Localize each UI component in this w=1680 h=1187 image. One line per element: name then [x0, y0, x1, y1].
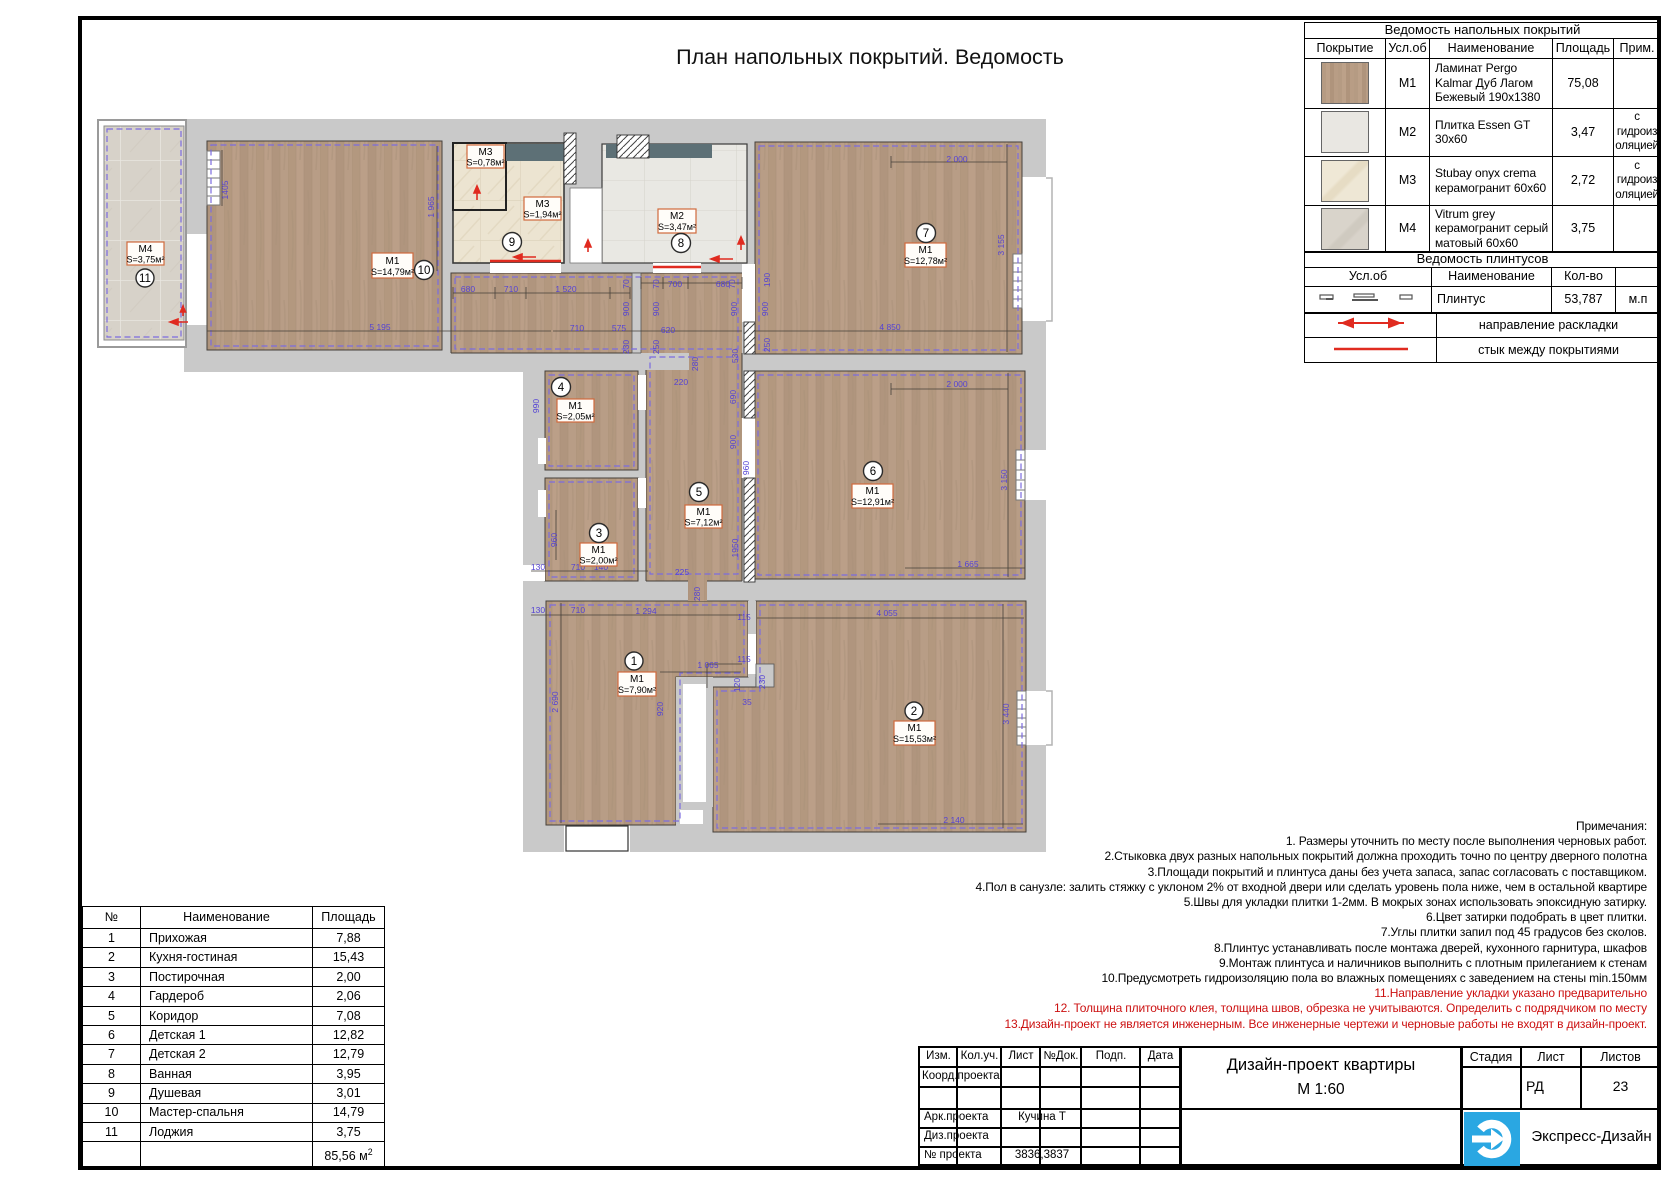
svg-text:530: 530	[730, 349, 740, 363]
svg-text:70: 70	[621, 279, 631, 289]
svg-text:6: 6	[870, 466, 876, 478]
svg-text:М1: М1	[919, 245, 933, 256]
svg-text:7: 7	[923, 228, 929, 240]
svg-text:900: 900	[729, 302, 739, 316]
svg-text:70: 70	[651, 279, 661, 289]
svg-text:S=7,12м²: S=7,12м²	[685, 518, 723, 528]
svg-text:1950: 1950	[730, 538, 740, 557]
svg-text:3 155: 3 155	[996, 234, 1006, 256]
svg-text:35: 35	[742, 697, 752, 707]
svg-text:2 690: 2 690	[550, 691, 560, 713]
svg-text:280: 280	[692, 587, 702, 601]
svg-text:8: 8	[678, 238, 684, 250]
svg-text:115: 115	[737, 654, 751, 664]
svg-text:900: 900	[651, 302, 661, 316]
svg-text:3 440: 3 440	[1001, 703, 1011, 725]
svg-text:1 665: 1 665	[957, 559, 979, 569]
svg-text:900: 900	[621, 302, 631, 316]
svg-text:М1: М1	[697, 507, 711, 518]
svg-text:М1: М1	[908, 723, 922, 734]
svg-text:250: 250	[651, 340, 661, 354]
svg-text:280: 280	[690, 357, 700, 371]
svg-text:S=15,53м²: S=15,53м²	[893, 734, 936, 744]
svg-text:920: 920	[655, 702, 665, 716]
svg-text:S=12,91м²: S=12,91м²	[851, 497, 894, 507]
svg-text:960: 960	[549, 533, 559, 547]
svg-text:М3: М3	[479, 147, 493, 158]
svg-text:575: 575	[612, 323, 626, 333]
svg-text:230: 230	[621, 340, 631, 354]
svg-text:3: 3	[596, 528, 602, 540]
svg-text:225: 225	[675, 567, 689, 577]
svg-text:900: 900	[760, 302, 770, 316]
svg-text:S=2,00м²: S=2,00м²	[580, 556, 618, 566]
svg-text:5 195: 5 195	[369, 322, 391, 332]
svg-text:70: 70	[727, 279, 737, 289]
svg-text:130: 130	[531, 605, 545, 615]
svg-text:М2: М2	[670, 211, 684, 222]
svg-text:1: 1	[631, 656, 637, 668]
svg-text:990: 990	[531, 399, 541, 413]
svg-text:М1: М1	[592, 545, 606, 556]
svg-text:710: 710	[570, 323, 584, 333]
svg-text:620: 620	[661, 325, 675, 335]
svg-text:М3: М3	[536, 199, 550, 210]
svg-text:5: 5	[696, 487, 702, 499]
svg-text:190: 190	[762, 273, 772, 287]
svg-text:S=3,47м²: S=3,47м²	[658, 222, 696, 232]
svg-text:2: 2	[911, 706, 917, 718]
svg-text:9: 9	[509, 237, 515, 249]
svg-text:S=0,78м²: S=0,78м²	[467, 158, 505, 168]
svg-text:115: 115	[737, 612, 751, 622]
svg-text:S=1,94м²: S=1,94м²	[524, 210, 562, 220]
svg-text:М1: М1	[569, 401, 583, 412]
svg-text:130: 130	[531, 562, 545, 572]
svg-text:700: 700	[668, 279, 682, 289]
svg-text:1 294: 1 294	[635, 606, 657, 616]
svg-text:М1: М1	[866, 486, 880, 497]
svg-text:1 520: 1 520	[555, 284, 577, 294]
svg-text:М1: М1	[386, 256, 400, 267]
svg-text:S=3,75м²: S=3,75м²	[127, 255, 165, 265]
svg-text:М4: М4	[139, 244, 153, 255]
svg-text:710: 710	[571, 605, 585, 615]
svg-text:S=14,79м²: S=14,79м²	[371, 267, 414, 277]
svg-text:120: 120	[732, 678, 742, 692]
svg-text:220: 220	[674, 377, 688, 387]
svg-text:680: 680	[461, 284, 475, 294]
svg-text:4 055: 4 055	[876, 608, 898, 618]
svg-text:3 150: 3 150	[999, 469, 1009, 491]
svg-text:2 000: 2 000	[946, 154, 968, 164]
svg-text:4: 4	[558, 382, 565, 394]
svg-text:10: 10	[418, 265, 431, 277]
svg-text:900: 900	[728, 435, 738, 449]
svg-text:4 850: 4 850	[879, 322, 901, 332]
svg-text:S=12,78м²: S=12,78м²	[904, 256, 947, 266]
svg-text:690: 690	[728, 390, 738, 404]
svg-text:1 065: 1 065	[697, 660, 719, 670]
svg-text:2 000: 2 000	[946, 379, 968, 389]
svg-text:1 965: 1 965	[426, 196, 436, 218]
svg-text:М1: М1	[630, 674, 644, 685]
svg-text:1405: 1405	[220, 180, 230, 199]
svg-text:S=7,90м²: S=7,90м²	[618, 685, 656, 695]
svg-text:960: 960	[741, 461, 751, 475]
svg-text:230: 230	[757, 675, 767, 689]
svg-text:710: 710	[504, 284, 518, 294]
svg-text:S=2,05м²: S=2,05м²	[557, 412, 595, 422]
svg-text:250: 250	[762, 338, 772, 352]
svg-text:11: 11	[139, 273, 151, 285]
